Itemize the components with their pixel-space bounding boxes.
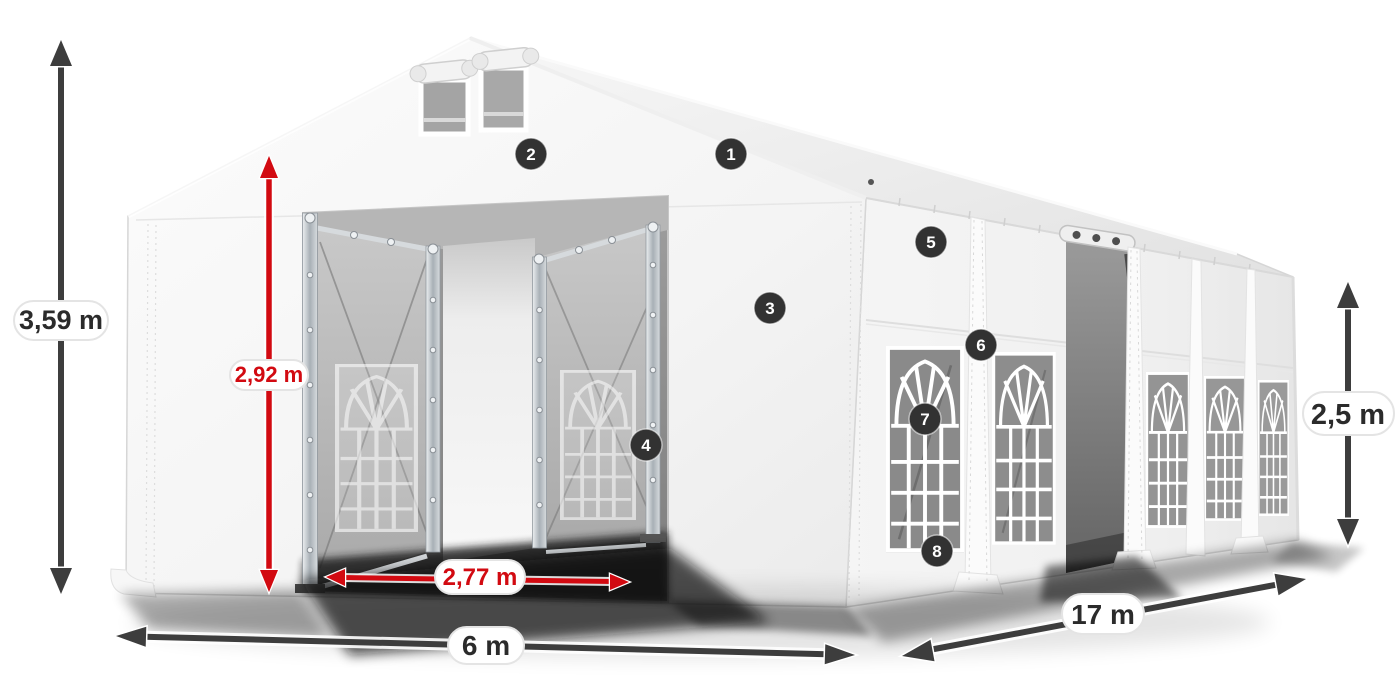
marker-5-number: 5 [926, 233, 935, 252]
marker-3-number: 3 [765, 299, 774, 318]
entrance-height-value: 2,92 m [235, 362, 304, 387]
entrance-door-panel-left [318, 229, 432, 586]
total-height-value: 3,59 m [19, 305, 103, 335]
dimension-label-side-length: 17 m [1062, 594, 1144, 634]
marker-4-number: 4 [641, 436, 651, 455]
side-window-3 [1146, 372, 1190, 528]
pole-foot-plate [640, 534, 666, 542]
marker-8-number: 8 [932, 542, 941, 561]
marker-5: 5 [915, 226, 947, 258]
marker-3: 3 [754, 292, 786, 324]
roof-vent-left [409, 59, 479, 134]
side-length-value: 17 m [1071, 599, 1135, 630]
marker-4: 4 [630, 429, 662, 461]
door-window-print [335, 364, 418, 532]
marker-6: 6 [965, 329, 997, 361]
marker-1-number: 1 [726, 145, 735, 164]
marker-1: 1 [715, 138, 747, 170]
dimension-label-total-height: 3,59 m [14, 301, 108, 340]
entrance-see-through-gap [443, 238, 535, 562]
marker-7: 7 [909, 403, 941, 435]
side-window-5 [1258, 380, 1289, 516]
entrance-door-panel-right [538, 226, 652, 549]
tent-illustration [111, 38, 1298, 607]
marker-8: 8 [921, 535, 953, 567]
dimension-label-gable-width: 6 m [448, 627, 524, 664]
dimension-label-entrance-width: 2,77 m [435, 560, 525, 594]
gable-width-value: 6 m [462, 630, 510, 661]
side-window-1 [886, 346, 964, 552]
frame-pole [646, 225, 660, 542]
side-window-4 [1204, 376, 1246, 521]
side-window-2 [992, 352, 1056, 545]
side-height-value: 2,5 m [1311, 399, 1385, 431]
marker-6-number: 6 [976, 336, 985, 355]
tent-diagram-image: 3,59 m 2,92 m 2,77 m 6 m 17 m 2,5 m 1 [0, 0, 1400, 700]
marker-7-number: 7 [920, 410, 929, 429]
door-window-print [560, 370, 636, 520]
marker-2-number: 2 [526, 145, 535, 164]
dimension-label-side-height: 2,5 m [1303, 392, 1394, 435]
dimension-label-entrance-height: 2,92 m [230, 360, 308, 390]
entrance-width-value: 2,77 m [443, 564, 518, 591]
eave-corner-fitting [868, 179, 874, 185]
frame-pole [303, 213, 318, 592]
tent-diagram: 3,59 m 2,92 m 2,77 m 6 m 17 m 2,5 m 1 [0, 0, 1400, 700]
side-door-opening [1066, 236, 1128, 573]
marker-2: 2 [515, 138, 547, 170]
